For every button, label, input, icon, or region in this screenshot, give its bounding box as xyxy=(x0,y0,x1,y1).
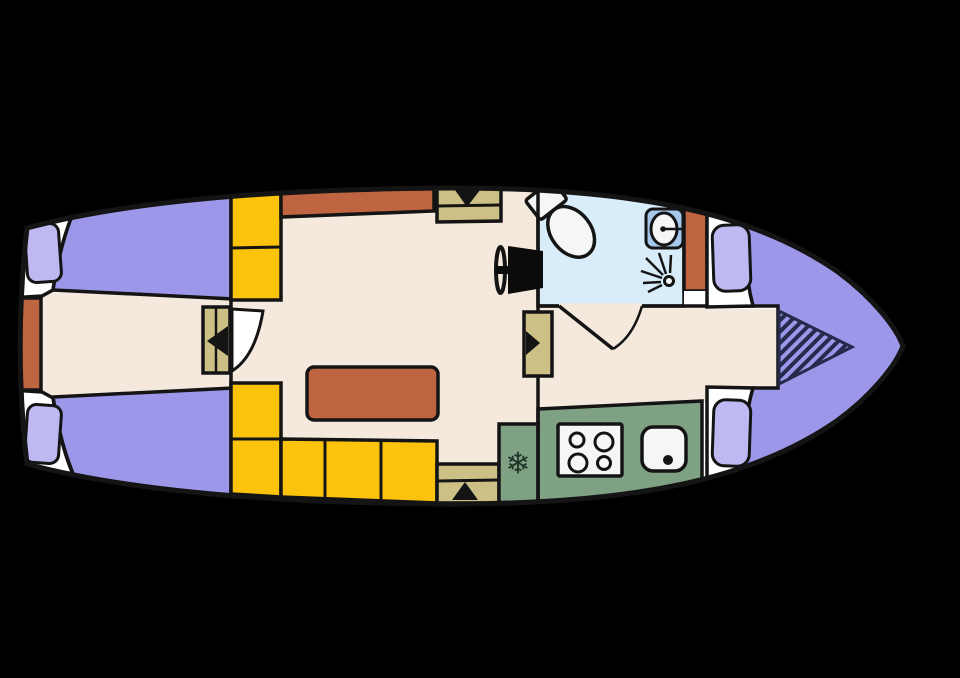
salon-bench-starboard-front xyxy=(281,439,437,503)
washbasin-icon xyxy=(646,209,683,248)
salon-bench-port xyxy=(231,187,281,300)
snowflake-icon: ❄ xyxy=(505,447,530,482)
aft-pillow-port xyxy=(24,223,62,283)
boat-floor-plan: ❄ xyxy=(0,0,960,678)
bow-pillow-starboard xyxy=(712,399,751,466)
stove-top xyxy=(558,424,622,476)
step-tread-line xyxy=(437,205,501,206)
galley-sink-icon xyxy=(642,427,686,471)
shower-ray xyxy=(643,282,661,283)
helm-console xyxy=(508,246,543,294)
shower-ray xyxy=(670,255,671,273)
stove-icon xyxy=(558,424,622,476)
sink-basin xyxy=(642,427,686,471)
bow-pillow-port xyxy=(712,224,751,291)
helm-column xyxy=(496,266,510,274)
bench-seam xyxy=(231,247,281,248)
step-tread-line xyxy=(437,480,499,481)
shower-head xyxy=(665,277,674,286)
sink-drain xyxy=(663,455,673,465)
salon-table xyxy=(307,367,438,420)
aft-pillow-starboard xyxy=(24,404,62,464)
basin-drain xyxy=(660,226,666,232)
helm-station xyxy=(496,246,543,294)
